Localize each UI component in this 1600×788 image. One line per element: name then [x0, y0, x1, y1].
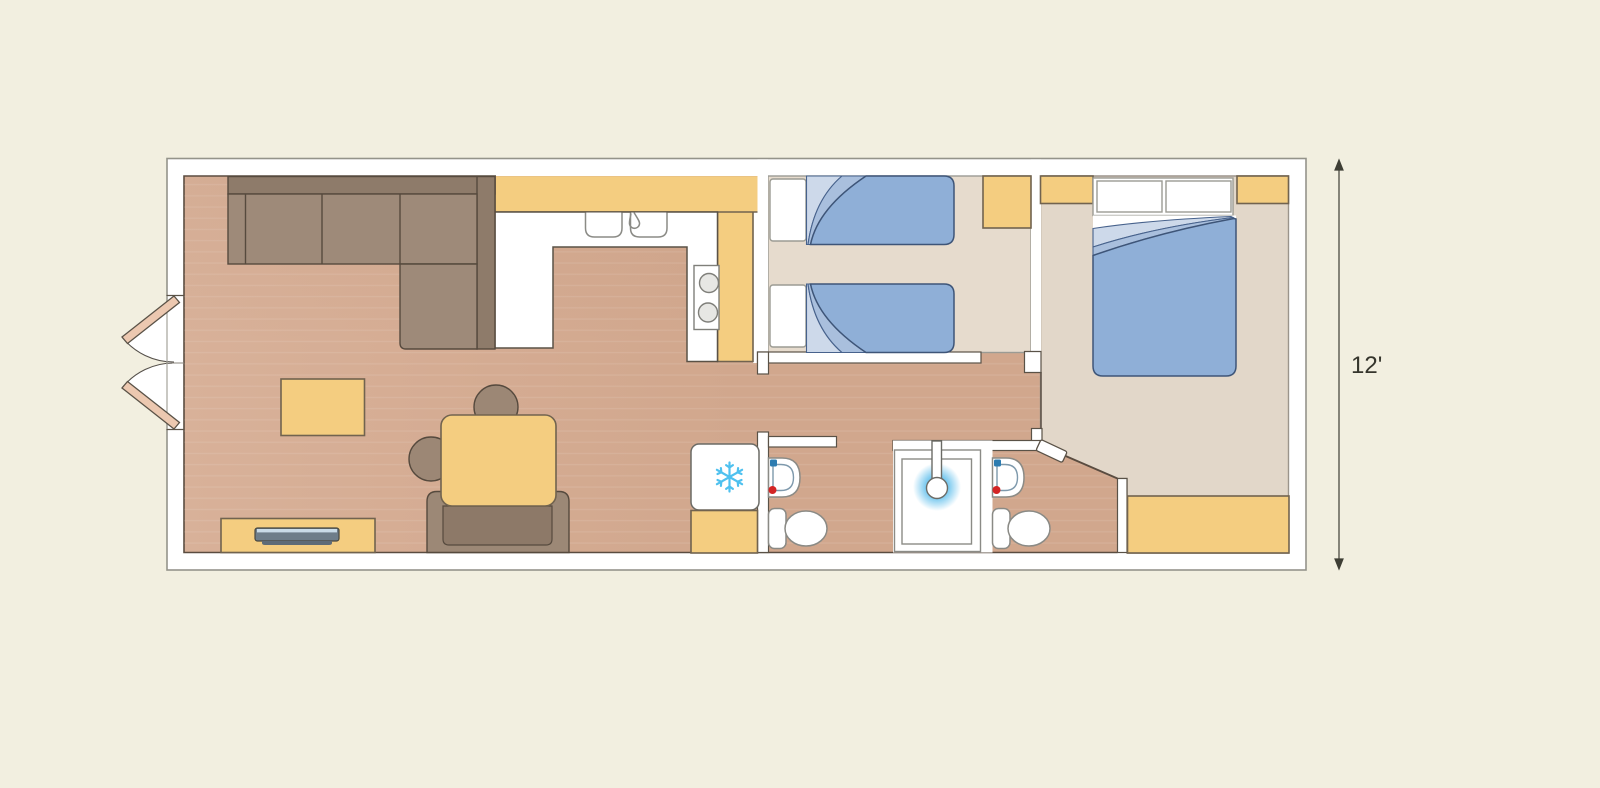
svg-text:12': 12' — [1351, 352, 1382, 379]
